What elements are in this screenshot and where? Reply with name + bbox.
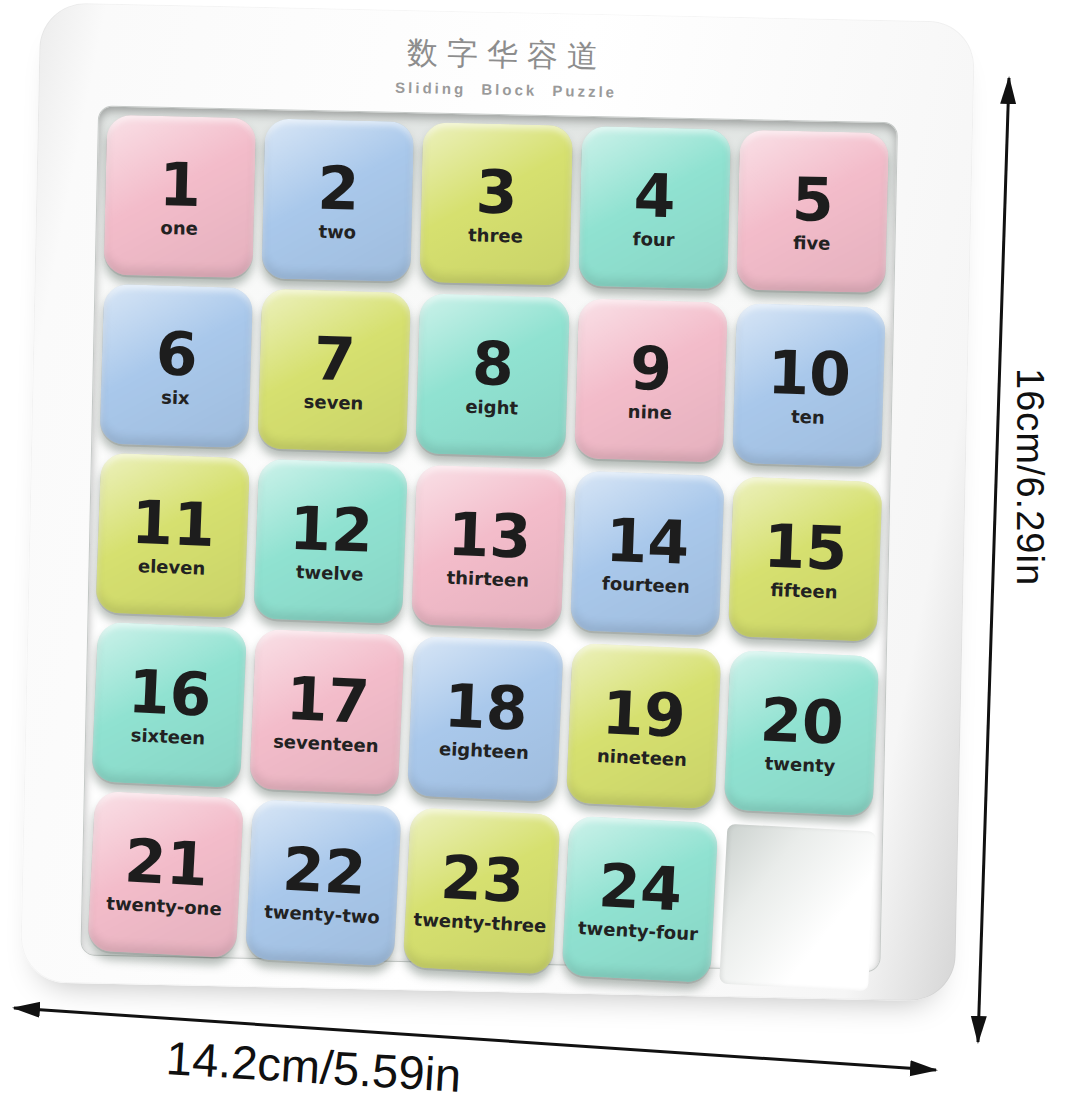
tile-number: 19 — [601, 682, 687, 746]
puzzle-tile-6: 6six — [99, 284, 253, 448]
tile-tray: 1one2two3three4four5five6six7seven8eight… — [80, 106, 898, 973]
puzzle-tile-2: 2two — [262, 118, 415, 281]
tile-word: two — [318, 222, 356, 243]
tile-number: 4 — [633, 165, 676, 226]
tile-word: one — [160, 218, 198, 239]
tile-number: 8 — [471, 333, 515, 394]
puzzle-tile-23: 23twenty-three — [403, 807, 560, 975]
tile-word: twenty-two — [264, 902, 381, 928]
tile-number: 1 — [159, 154, 202, 215]
tile-number: 3 — [475, 162, 518, 223]
tile-number: 22 — [281, 839, 368, 903]
puzzle-tile-17: 17seventeen — [249, 629, 405, 795]
puzzle-board: 数字华容道 Sliding Block Puzzle 1one2two3thre… — [20, 2, 975, 1001]
tile-number: 21 — [123, 830, 210, 894]
tile-number: 24 — [597, 855, 684, 919]
tile-word: twenty-three — [413, 910, 547, 937]
tile-number: 23 — [439, 847, 526, 911]
tile-number: 13 — [447, 504, 533, 567]
tile-number: 9 — [629, 338, 673, 399]
tile-number: 12 — [289, 498, 375, 561]
puzzle-tile-11: 11eleven — [95, 453, 250, 618]
tile-number: 15 — [763, 516, 849, 579]
tile-word: eight — [465, 397, 518, 418]
puzzle-tile-4: 4four — [578, 126, 731, 289]
tile-word: nineteen — [597, 746, 688, 770]
tile-word: five — [793, 233, 831, 254]
puzzle-tile-16: 16sixteen — [91, 622, 247, 788]
tile-word: nine — [627, 402, 672, 423]
width-dimension-label: 14.2cm/5.59in — [165, 1030, 463, 1103]
tile-word: twenty-one — [106, 894, 222, 920]
puzzle-tile-10: 10ten — [732, 303, 886, 467]
puzzle-tile-24: 24twenty-four — [561, 816, 718, 984]
tile-word: fifteen — [770, 580, 838, 602]
puzzle-tile-14: 14fourteen — [570, 471, 725, 636]
puzzle-tile-8: 8eight — [416, 293, 570, 457]
tile-word: four — [632, 229, 674, 250]
tile-word: ten — [791, 407, 825, 428]
tile-number: 14 — [605, 510, 691, 573]
puzzle-tile-9: 9nine — [574, 298, 728, 462]
tile-number: 2 — [317, 158, 360, 219]
tile-number: 5 — [791, 169, 834, 230]
tile-number: 18 — [443, 675, 529, 739]
tile-word: six — [161, 388, 190, 409]
tile-word: seven — [303, 392, 363, 414]
empty-slot — [719, 824, 876, 992]
tile-number: 11 — [130, 492, 216, 555]
tile-row-1: 1one2two3three4four5five — [103, 115, 889, 293]
tile-word: eleven — [138, 556, 206, 578]
height-dimension-label: 16cm/6.29in — [1008, 368, 1051, 678]
tile-row-4: 16sixteen17seventeen18eighteen19nineteen… — [91, 622, 879, 817]
puzzle-tile-3: 3three — [420, 122, 573, 285]
tile-row-2: 6six7seven8eight9nine10ten — [99, 284, 886, 468]
tile-number: 16 — [127, 661, 213, 725]
puzzle-tile-15: 15fifteen — [728, 476, 883, 641]
tile-number: 6 — [155, 323, 199, 384]
tile-row-3: 11eleven12twelve13thirteen14fourteen15fi… — [95, 453, 882, 642]
tile-word: twelve — [296, 562, 364, 584]
tile-number: 10 — [767, 342, 852, 405]
tile-number: 20 — [759, 689, 845, 753]
puzzle-tile-21: 21twenty-one — [87, 791, 244, 959]
tile-word: eighteen — [439, 739, 530, 763]
width-double-arrow-icon — [14, 1008, 936, 1070]
tile-word: twenty — [764, 754, 835, 777]
tile-word: three — [468, 225, 523, 246]
tile-number: 7 — [313, 328, 357, 389]
tile-number: 17 — [285, 668, 371, 732]
puzzle-tile-18: 18eighteen — [407, 636, 563, 802]
tile-word: sixteen — [130, 725, 205, 748]
puzzle-tile-20: 20twenty — [723, 650, 879, 816]
tile-word: fourteen — [602, 574, 690, 597]
tile-word: seventeen — [273, 732, 379, 756]
tile-word: thirteen — [446, 568, 529, 591]
height-double-arrow-icon — [978, 78, 1009, 1042]
puzzle-tile-7: 7seven — [257, 289, 411, 453]
puzzle-tile-5: 5five — [736, 130, 889, 293]
puzzle-tile-1: 1one — [103, 115, 256, 278]
board-header: 数字华容道 Sliding Block Puzzle — [39, 24, 975, 108]
tile-word: twenty-four — [578, 918, 699, 944]
puzzle-tile-12: 12twelve — [253, 459, 408, 624]
puzzle-tile-13: 13thirteen — [411, 465, 566, 630]
puzzle-tile-22: 22twenty-two — [245, 799, 402, 967]
tile-row-5: 21twenty-one22twenty-two23twenty-three24… — [87, 791, 876, 992]
puzzle-tile-19: 19nineteen — [565, 643, 721, 809]
